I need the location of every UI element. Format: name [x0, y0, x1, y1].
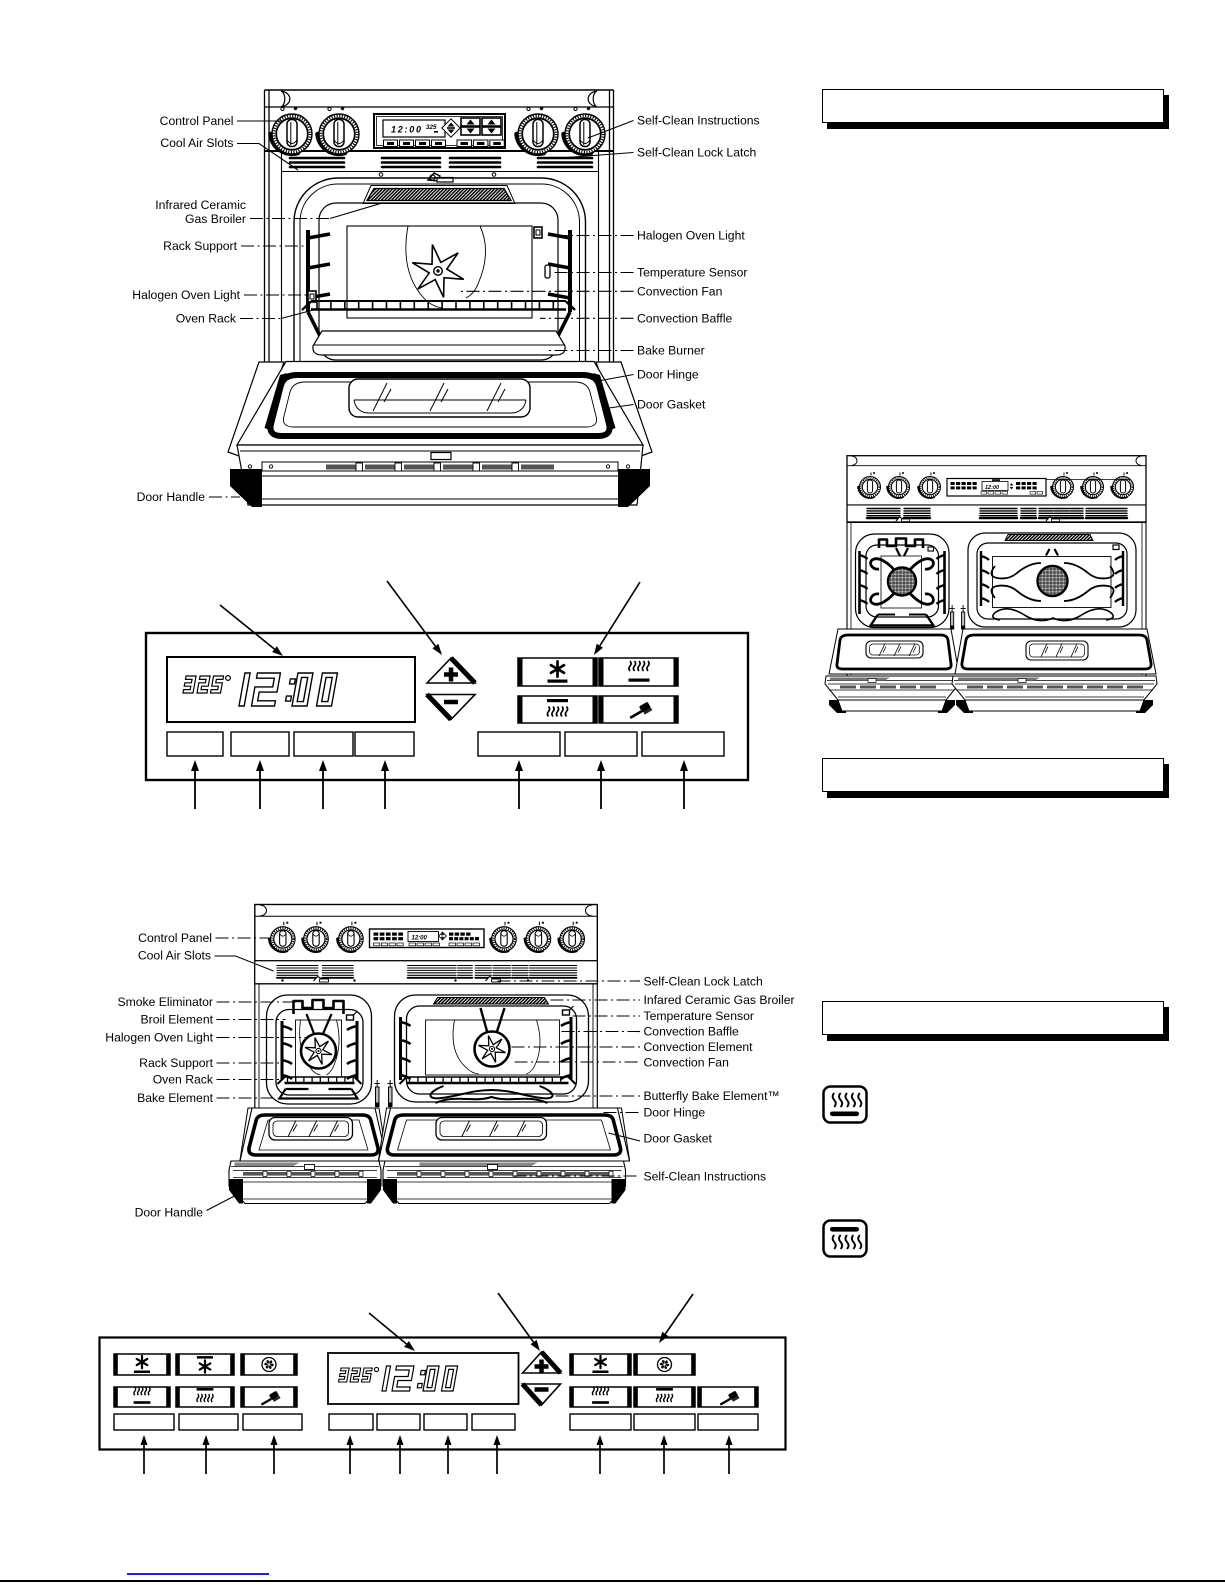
svg-text:Self-Clean Instructions: Self-Clean Instructions — [644, 1170, 767, 1184]
svg-text:Rack Support: Rack Support — [163, 239, 237, 253]
svg-text:Control Panel: Control Panel — [160, 114, 234, 128]
svg-text:Oven Rack: Oven Rack — [153, 1073, 214, 1087]
svg-text:Convection Baffle: Convection Baffle — [644, 1025, 740, 1039]
svg-text:325: 325 — [426, 124, 437, 131]
svg-text:Convection Fan: Convection Fan — [644, 1056, 729, 1070]
svg-text:Door Hinge: Door Hinge — [637, 368, 699, 382]
svg-text:Butterfly Bake Element™: Butterfly Bake Element™ — [644, 1089, 780, 1103]
svg-text:Halogen Oven Light: Halogen Oven Light — [637, 229, 745, 243]
svg-text:Bake Burner: Bake Burner — [637, 344, 705, 358]
svg-text:Bake Element: Bake Element — [137, 1091, 213, 1105]
svg-text:Self-Clean Instructions: Self-Clean Instructions — [637, 114, 760, 128]
svg-text:Halogen Oven Light: Halogen Oven Light — [105, 1031, 213, 1045]
svg-text:Gas Broiler: Gas Broiler — [185, 212, 246, 226]
svg-text:Cool Air Slots: Cool Air Slots — [138, 949, 211, 963]
svg-text:Self-Clean Lock Latch: Self-Clean Lock Latch — [637, 146, 756, 160]
svg-text:Control Panel: Control Panel — [138, 931, 212, 945]
svg-text:Temperature Sensor: Temperature Sensor — [637, 266, 747, 280]
svg-text:Convection Baffle: Convection Baffle — [637, 312, 733, 326]
svg-text:Rack Support: Rack Support — [139, 1056, 213, 1070]
svg-text:12:00: 12:00 — [985, 485, 999, 491]
svg-text:Infared Ceramic Gas Broiler: Infared Ceramic Gas Broiler — [644, 993, 795, 1007]
svg-text:12:00: 12:00 — [391, 125, 421, 135]
svg-text:Convection Element: Convection Element — [644, 1040, 754, 1054]
svg-text:Cool Air Slots: Cool Air Slots — [160, 136, 233, 150]
svg-text:Smoke Eliminator: Smoke Eliminator — [117, 995, 213, 1009]
svg-text:Door Handle: Door Handle — [135, 1206, 204, 1220]
svg-text:Self-Clean Lock Latch: Self-Clean Lock Latch — [644, 975, 763, 989]
svg-text:Convection Fan: Convection Fan — [637, 285, 722, 299]
svg-text:Broil Element: Broil Element — [141, 1013, 214, 1027]
svg-text:Temperature Sensor: Temperature Sensor — [644, 1009, 754, 1023]
svg-text:Door Gasket: Door Gasket — [644, 1132, 713, 1146]
svg-text:Infrared Ceramic: Infrared Ceramic — [155, 198, 246, 212]
svg-text:Door Gasket: Door Gasket — [637, 398, 706, 412]
svg-text:Door Hinge: Door Hinge — [644, 1106, 706, 1120]
svg-text:Oven Rack: Oven Rack — [176, 312, 237, 326]
svg-text:12:00: 12:00 — [412, 936, 428, 942]
svg-text:Halogen Oven Light: Halogen Oven Light — [132, 288, 240, 302]
svg-text:Door Handle: Door Handle — [137, 490, 206, 504]
